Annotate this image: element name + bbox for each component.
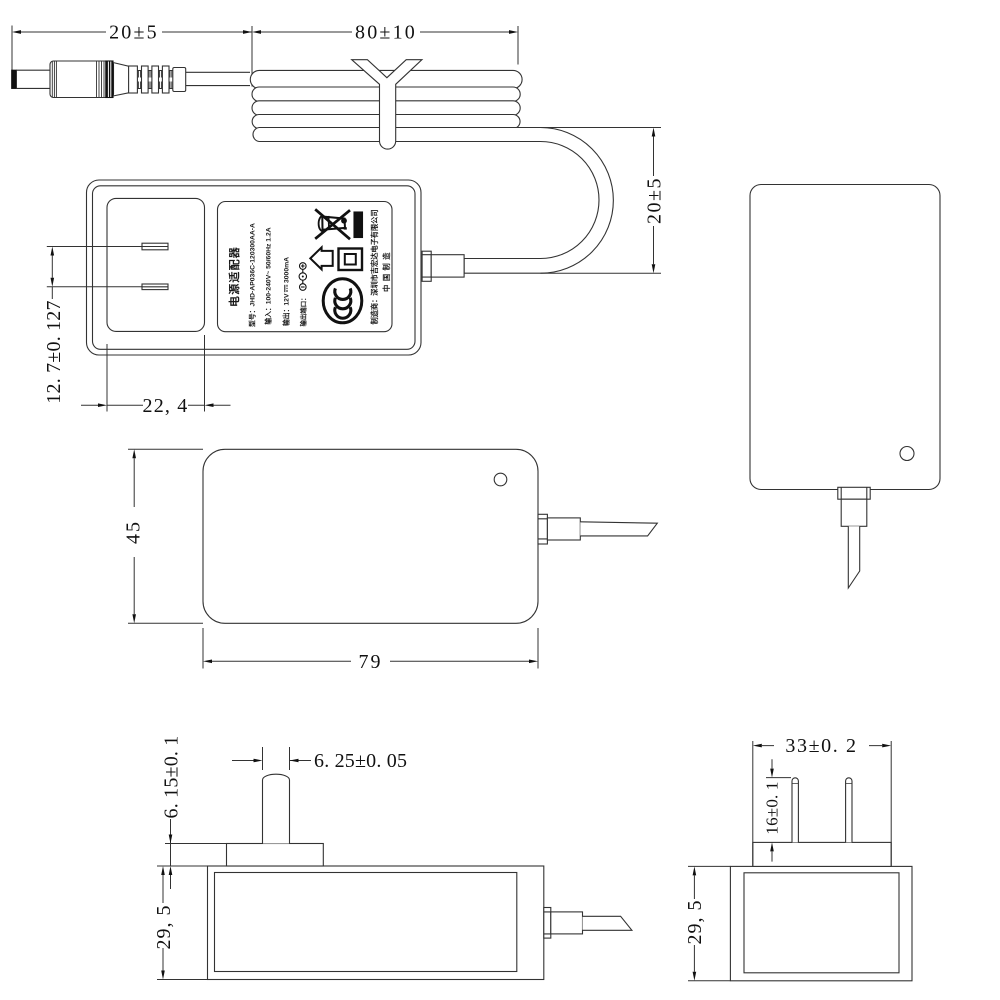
svg-text:20±5: 20±5 [644,177,666,224]
svg-text:电源适配器: 电源适配器 [227,246,241,307]
svg-text:20±5: 20±5 [109,22,159,44]
svg-text:制造商：深圳市吉宏达电子有限公司: 制造商：深圳市吉宏达电子有限公司 [370,209,379,324]
svg-text:输入：100-240V~ 50/60Hz 1.2A: 输入：100-240V~ 50/60Hz 1.2A [264,227,273,324]
svg-text:80±10: 80±10 [355,22,417,44]
svg-text:33±0. 2: 33±0. 2 [785,735,857,757]
svg-text:79: 79 [359,651,383,673]
svg-text:6. 15±0. 1: 6. 15±0. 1 [160,736,182,819]
svg-text:输出端口：: 输出端口： [299,295,308,327]
svg-text:3000mA: 3000mA [283,257,290,283]
svg-text:16±0. 1: 16±0. 1 [763,781,782,834]
svg-text:中国制造: 中国制造 [382,249,391,292]
svg-text:输出：12V: 输出：12V [281,293,290,326]
svg-text:29, 5: 29, 5 [684,900,706,945]
svg-text:6. 25±0. 05: 6. 25±0. 05 [314,750,407,772]
svg-text:45: 45 [123,520,145,544]
svg-text:型号：JHD-AP036C-120300AA-A: 型号：JHD-AP036C-120300AA-A [247,223,256,327]
svg-text:22, 4: 22, 4 [143,395,189,417]
svg-text:29, 5: 29, 5 [153,905,175,950]
svg-text:12. 7±0. 127: 12. 7±0. 127 [43,300,65,403]
